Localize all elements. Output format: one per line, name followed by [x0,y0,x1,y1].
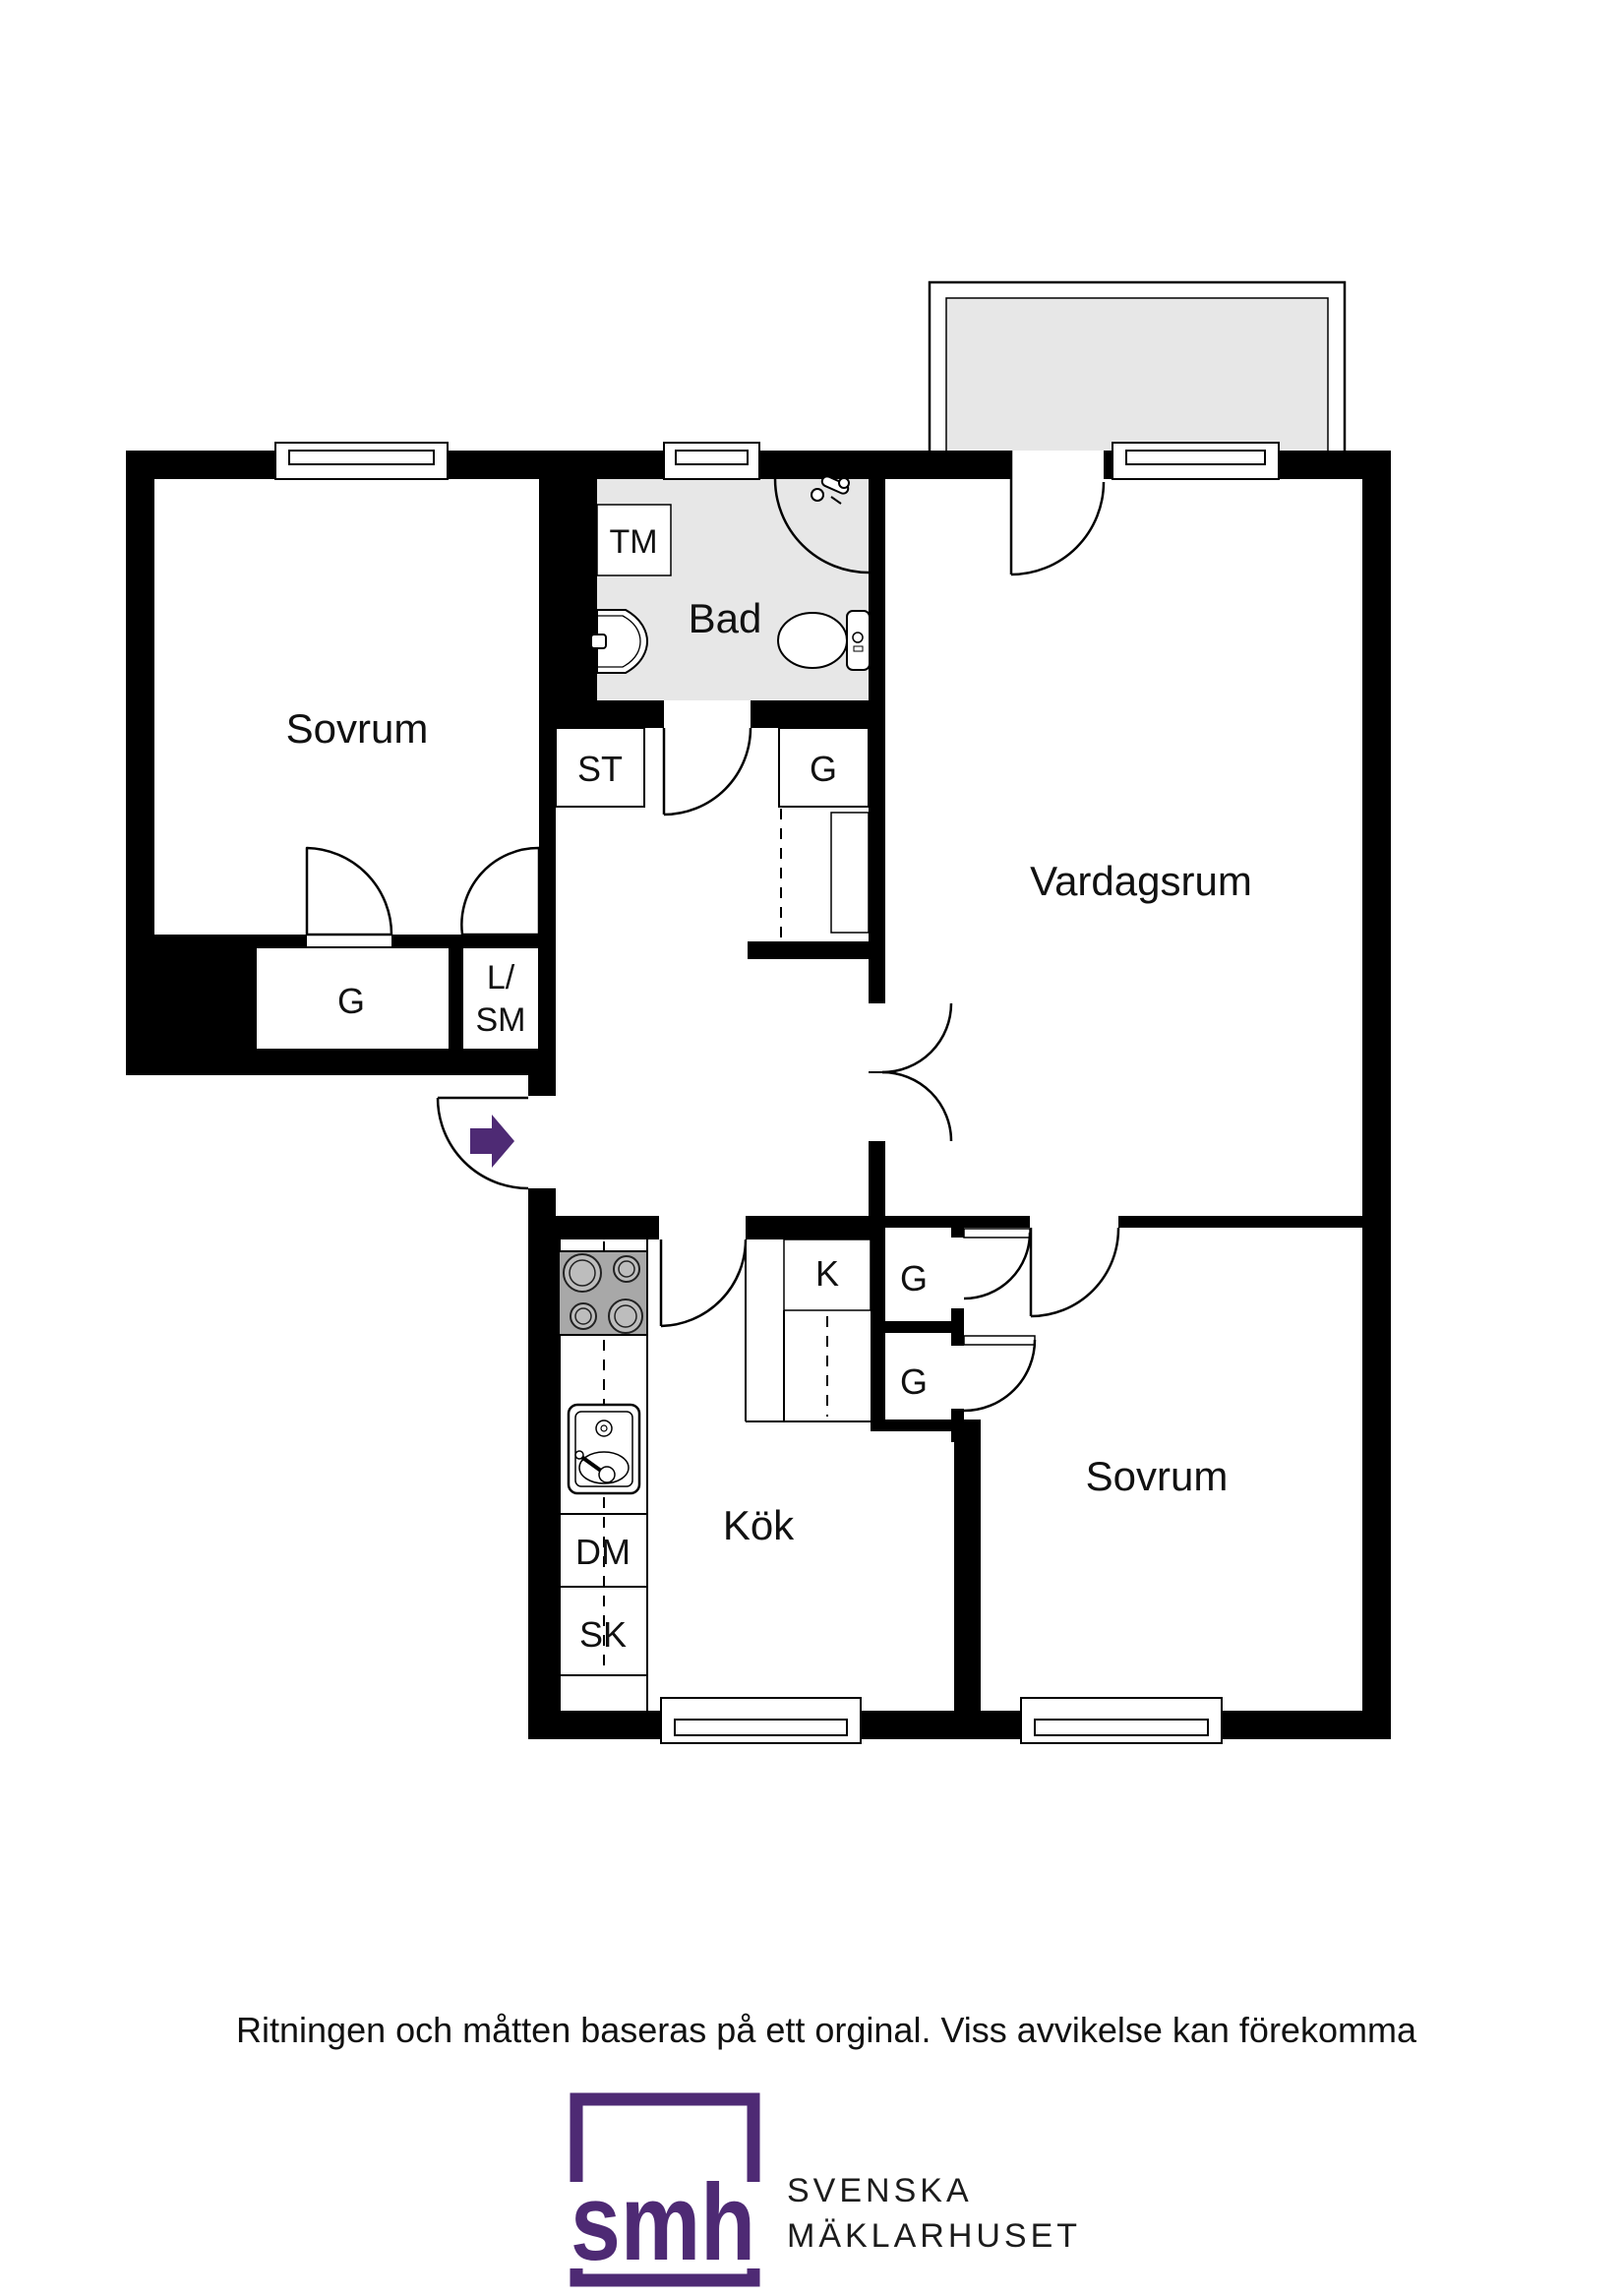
room-label-bathroom: Bad [689,595,762,641]
label-tall-cabinet: SK [579,1614,627,1655]
label-closet-lower-g: G [900,1361,928,1402]
floorplan-page: Sovrum Bad Vardagsrum Kök Sovrum TM ST G… [0,0,1623,2296]
floorplan-canvas: Sovrum Bad Vardagsrum Kök Sovrum TM ST G… [0,0,1623,2296]
toilet-icon [778,611,870,670]
bedroom-left-door [307,848,391,935]
label-fridge-k: K [815,1253,839,1294]
window-bedroom-right [1021,1698,1222,1743]
balcony [930,282,1345,457]
logo-monogram: smh [571,2162,755,2283]
label-lsm-line1: L/ [487,959,515,997]
closet-hall-unit [831,813,869,933]
room-label-kitchen: Kök [723,1502,795,1548]
window-bedroom-left [275,443,448,479]
room-label-bedroom-left: Sovrum [286,705,429,752]
kitchen-door [661,1239,746,1326]
closet-lower-g-door [964,1336,1035,1411]
window-bathroom [664,443,759,479]
closet-upper-g-door [964,1229,1030,1299]
logo-name-line2: MÄKLARHUSET [787,2217,1081,2255]
logo-name-line1: SVENSKA [787,2172,973,2209]
logo: smh SVENSKA MÄKLARHUSET [551,2099,1081,2283]
closet-lsm-door [461,848,539,935]
room-label-bedroom-right: Sovrum [1086,1453,1229,1499]
label-closet-bedroom-left-g: G [337,981,365,1021]
entry-arrow-icon [470,1115,514,1168]
label-closet-st: ST [577,749,623,789]
window-kitchen [661,1698,861,1743]
label-dishwasher: DM [575,1532,631,1572]
bath-sink-icon [591,610,647,673]
label-lsm-line2: SM [476,1001,526,1039]
kitchen-sink-icon [569,1405,639,1493]
label-washing-machine: TM [609,523,657,561]
room-label-living-room: Vardagsrum [1030,858,1252,904]
label-closet-upper-g: G [900,1258,928,1299]
stove-icon [559,1251,647,1335]
bedroom-right-door [1031,1228,1118,1316]
label-closet-hall-g: G [810,749,837,789]
disclaimer-text: Ritningen och måtten baseras på ett orgi… [236,2010,1417,2050]
window-living-room [1112,443,1279,479]
bathroom-door [664,728,751,815]
